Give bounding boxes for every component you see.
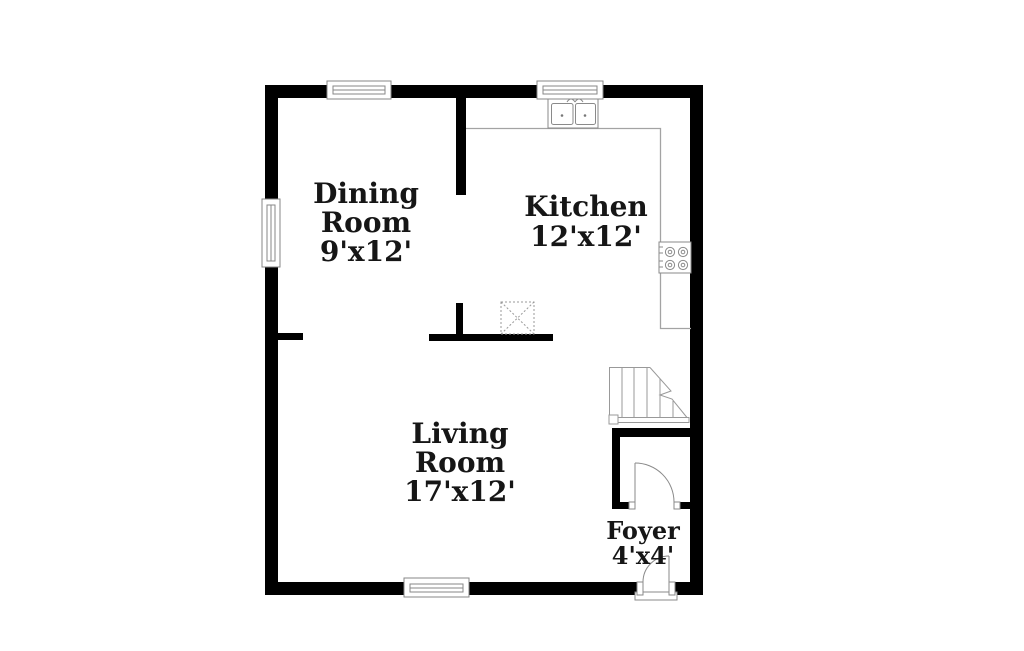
room-name-line: Room xyxy=(360,448,560,477)
floor-plan-drawing xyxy=(0,0,1024,651)
door-jamb xyxy=(669,582,675,595)
door-jamb xyxy=(629,502,635,509)
door-jamb xyxy=(637,582,643,595)
room-label-living: Living Room 17'x12' xyxy=(360,419,560,506)
closet-door-swing-arc xyxy=(635,463,674,502)
room-label-dining: Dining Room 9'x12' xyxy=(266,179,466,266)
room-name-line: Kitchen xyxy=(486,192,686,222)
wall-living-kitchen xyxy=(429,334,553,341)
floor-plan: Dining Room 9'x12' Kitchen 12'x12' Livin… xyxy=(0,0,1024,651)
room-label-kitchen: Kitchen 12'x12' xyxy=(486,192,686,252)
wall-stub-left xyxy=(278,333,303,340)
dashed-x-marker xyxy=(501,302,534,334)
window-living-bottom xyxy=(404,578,469,597)
room-name-line: Living xyxy=(360,419,560,448)
wall-stub-vertical xyxy=(456,303,463,334)
door-jamb xyxy=(674,502,680,509)
stair-bottom-rail xyxy=(609,418,689,423)
kitchen-sink xyxy=(548,99,598,128)
staircase xyxy=(609,368,689,425)
wall-under-stairs xyxy=(612,428,691,437)
room-label-foyer: Foyer 4'x4' xyxy=(583,518,703,568)
closet-door xyxy=(629,463,680,509)
room-dimensions: 12'x12' xyxy=(486,222,686,252)
wall-closet-left xyxy=(612,428,620,509)
window-dining-top xyxy=(327,81,391,99)
room-dimensions: 9'x12' xyxy=(266,237,466,266)
stair-left-top-edge xyxy=(610,368,651,419)
stair-treads xyxy=(622,368,673,418)
wall-exterior-left xyxy=(265,85,278,595)
stair-break-line xyxy=(650,368,689,421)
wall-closet-bottom-right xyxy=(680,502,691,509)
room-dimensions: 17'x12' xyxy=(360,477,560,506)
stair-newel-post xyxy=(609,415,618,424)
room-dimensions: 4'x4' xyxy=(583,543,703,568)
wall-closet-bottom-left xyxy=(612,502,629,509)
sink-drain-left xyxy=(561,114,564,117)
room-name-line: Dining xyxy=(266,179,466,208)
room-name-line: Foyer xyxy=(583,518,703,543)
sink-drain-right xyxy=(584,114,587,117)
window-kitchen-top xyxy=(537,81,603,99)
room-name-line: Room xyxy=(266,208,466,237)
